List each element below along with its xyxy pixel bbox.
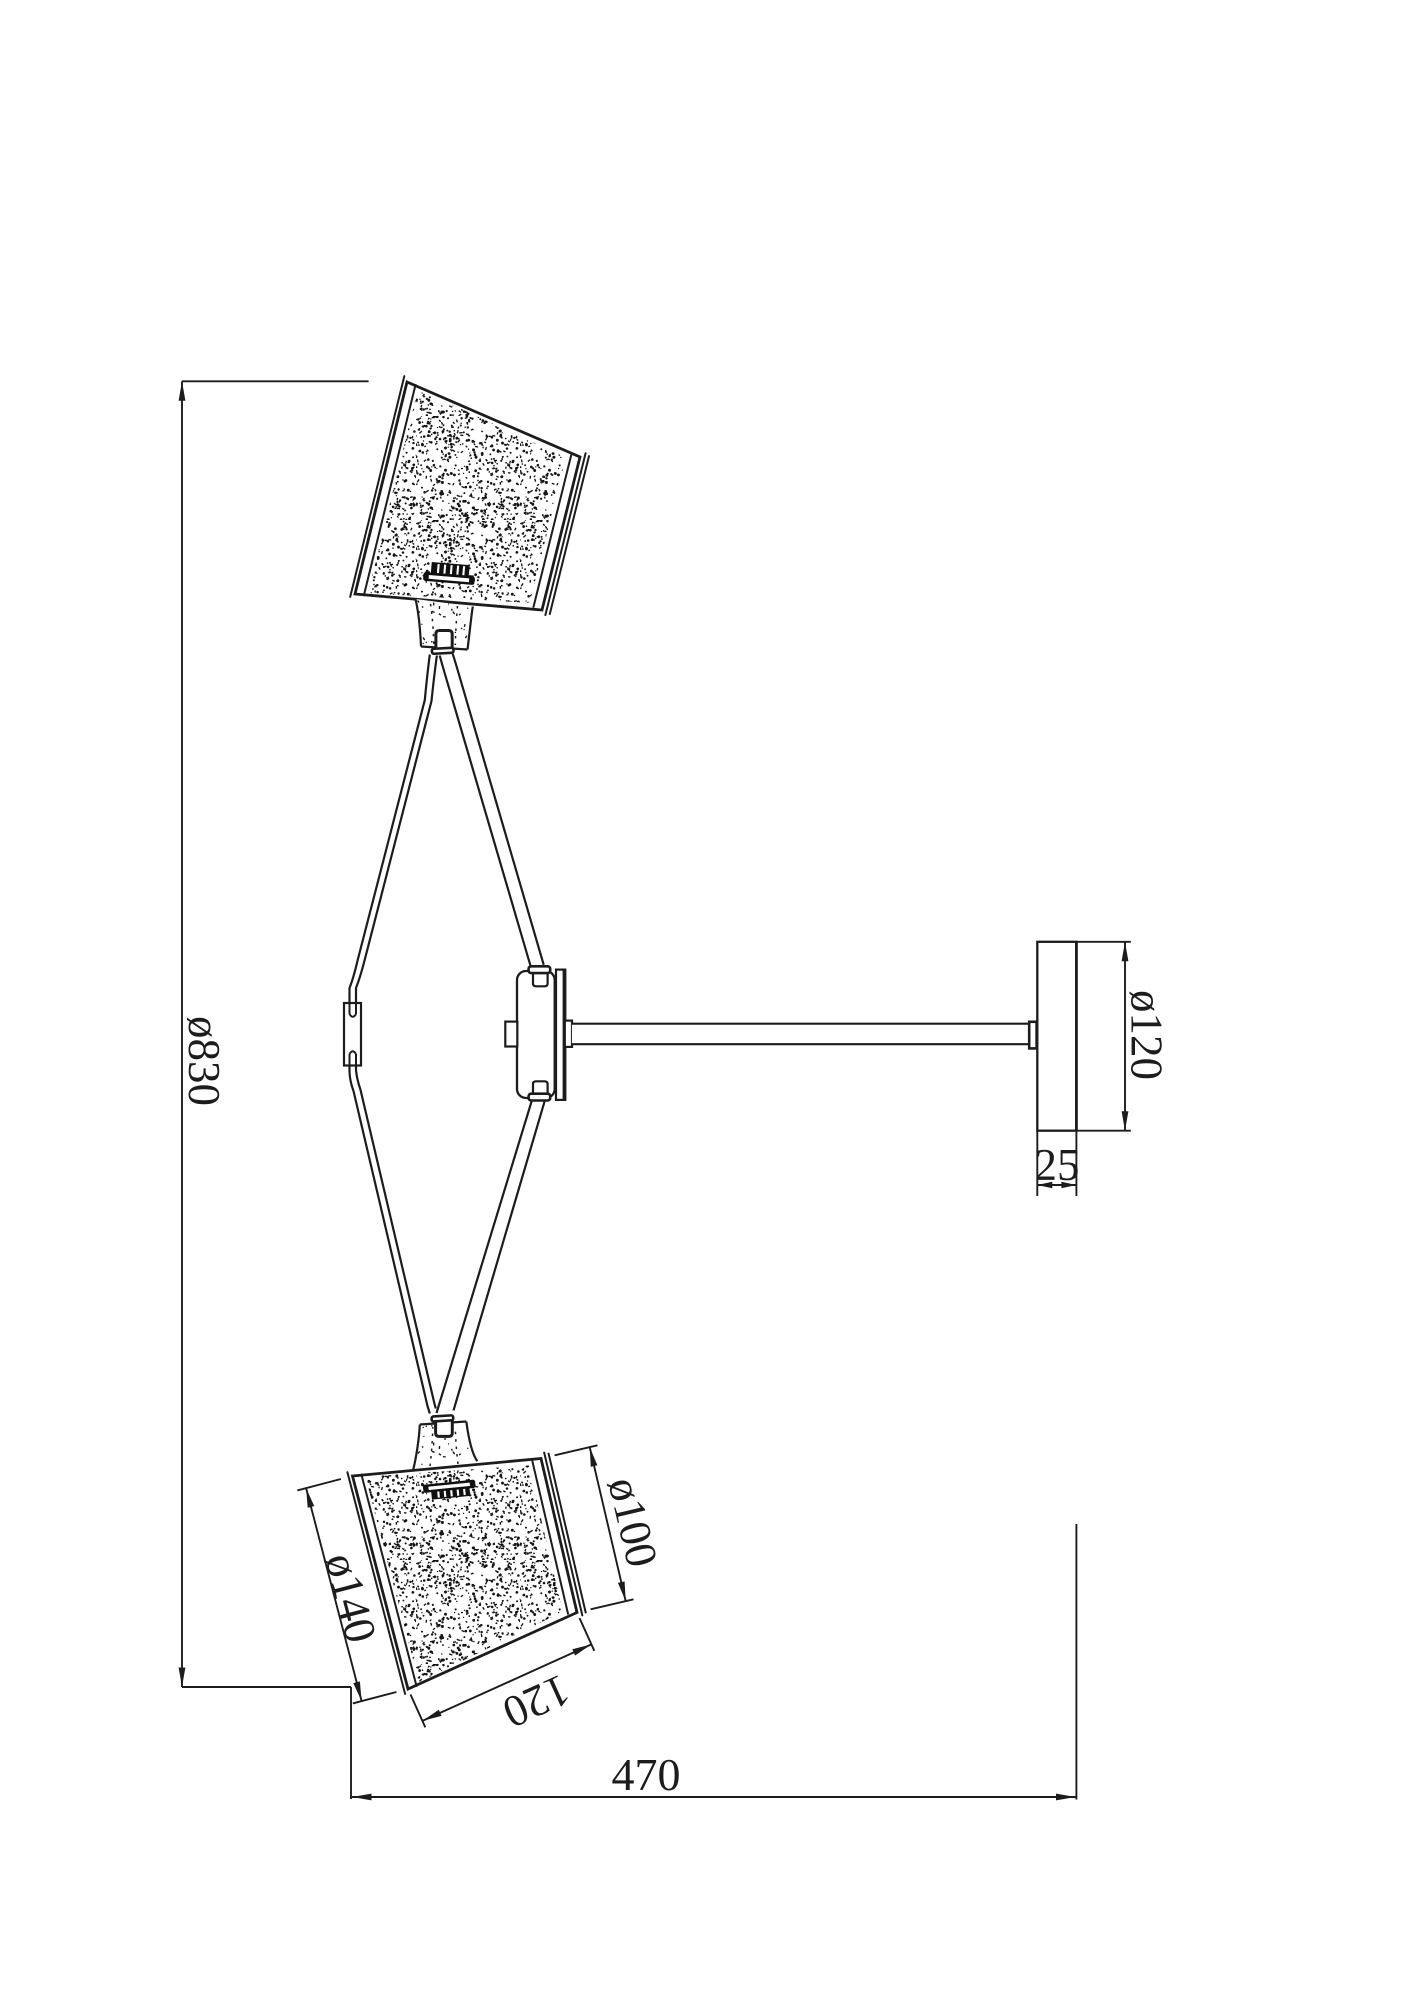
- svg-text:ø830: ø830: [179, 1016, 229, 1106]
- svg-text:ø120: ø120: [1122, 990, 1172, 1080]
- svg-text:470: 470: [612, 1749, 681, 1800]
- svg-text:25: 25: [1035, 1140, 1080, 1190]
